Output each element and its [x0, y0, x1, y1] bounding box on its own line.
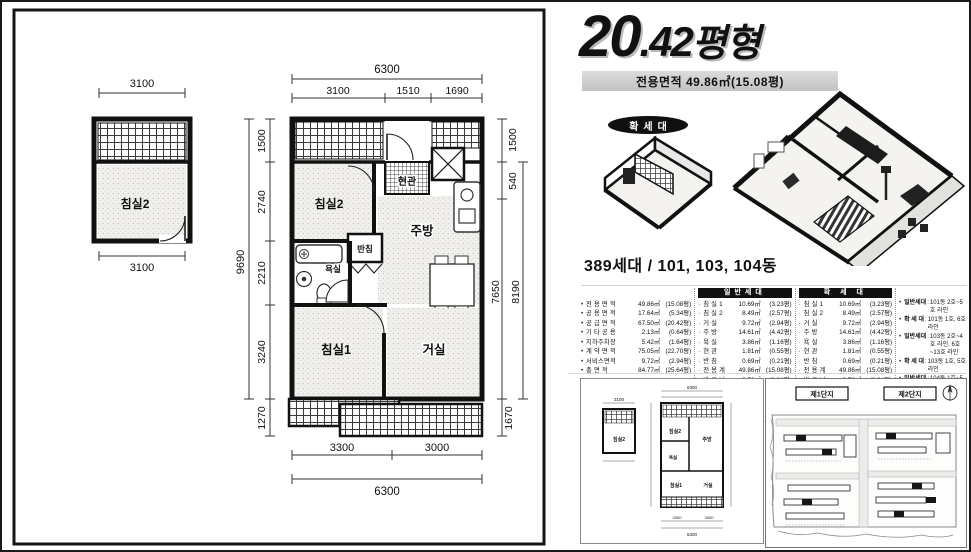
room-label-bath: 욕실	[325, 264, 341, 274]
svg-text:거실: 거실	[703, 482, 713, 489]
table-row: ·전 용 계49.86㎡(15.08평)	[698, 366, 791, 375]
svg-text:6300: 6300	[687, 385, 698, 390]
iso-view-apartment	[718, 84, 968, 266]
mini-floor-plan: 3100 6300 6300 3300 3000 침실2 침실2 주방 욕실 침…	[581, 379, 761, 541]
svg-text:7650: 7650	[490, 280, 502, 304]
bedroom1-area: 침실1	[292, 305, 387, 399]
table-row: ·거 실9.72㎡(2.94평)	[698, 319, 791, 328]
table-row: •지하주차장5.42㎡(1.64평)	[581, 338, 691, 347]
svg-text:주방: 주방	[702, 436, 712, 443]
room-label-bedroom2-small: 침실2	[121, 196, 150, 211]
table-row: ·주 방14.61㎡(4.42평)	[799, 328, 892, 337]
svg-text:욕실: 욕실	[669, 454, 677, 461]
svg-text:540: 540	[507, 172, 519, 190]
table-row: ·반 침0.69㎡(0.21평)	[698, 357, 791, 366]
divider-rule	[568, 373, 967, 374]
dim-label: 3100	[130, 262, 154, 274]
site-label-left: 제1단지	[810, 390, 833, 399]
svg-text:3240: 3240	[256, 340, 268, 364]
room-label-entrance: 현관	[398, 175, 417, 188]
page-title: 20.42평형	[579, 8, 760, 66]
svg-text:8190: 8190	[510, 280, 522, 304]
general-unit-header: 일반세대	[698, 288, 791, 298]
table-row: ·침 실 110.69㎡(3.23평)	[799, 300, 892, 309]
table-row: ·침 실 28.49㎡(2.57평)	[698, 309, 791, 318]
table-row: •전 용 면 적49.86㎡(15.08평)	[581, 300, 691, 309]
svg-text:1500: 1500	[507, 128, 519, 152]
svg-text:침실1: 침실1	[670, 482, 682, 489]
area-summary-rows: •전 용 면 적49.86㎡(15.08평) •공 용 면 적17.64㎡(5.…	[581, 300, 691, 376]
svg-text:침실2: 침실2	[613, 436, 625, 443]
main-plan: 6300 3100 1510 1690 현관	[289, 64, 528, 498]
dim-label: 3100	[130, 78, 154, 90]
table-row: •기 타 공 용2.13㎡(0.64평)	[581, 328, 691, 337]
table-row: ·욕 실3.86㎡(1.16평)	[799, 338, 892, 347]
svg-text:6300: 6300	[374, 64, 400, 76]
room-label-kitchen: 주방	[410, 223, 434, 238]
table-row: ·반 침0.69㎡(0.21평)	[799, 357, 892, 366]
table-row: •서비스면적9.72㎡(2.94평)	[581, 357, 691, 366]
svg-text:1500: 1500	[256, 129, 268, 153]
compass-icon	[943, 384, 957, 401]
table-row: •계 약 면 적75.05㎡(22.70평)	[581, 347, 691, 356]
site-label-right: 제2단지	[898, 390, 921, 399]
svg-text:3000: 3000	[705, 515, 715, 520]
kitchen-area: 주방	[378, 182, 480, 314]
table-row: ·거 실9.72㎡(2.94평)	[799, 319, 892, 328]
title-suffix: 평형	[692, 23, 760, 65]
expanded-unit-header: 확 세 대	[799, 288, 892, 298]
bottom-balcony	[289, 399, 482, 436]
iso-view-expanded-room	[595, 128, 720, 238]
svg-text:1670: 1670	[503, 406, 515, 430]
dim-column-left-labels: 9690 1500 2740 2210 3240 1270	[235, 129, 268, 430]
svg-text:3300: 3300	[330, 442, 354, 454]
title-decimal: .42	[640, 18, 692, 65]
table-row: •공 급 면 적67.50㎡(20.42평)	[581, 319, 691, 328]
svg-text:9690: 9690	[235, 250, 247, 274]
units-heading: 389세대 / 101, 103, 104동	[584, 252, 777, 276]
svg-text:침실2: 침실2	[669, 428, 681, 435]
table-row: ·욕 실3.86㎡(1.16평)	[698, 338, 791, 347]
floor-plan: 3100 침실2 3100 96	[2, 2, 562, 552]
entrance-area: 현관	[385, 121, 429, 194]
table-row: ·주 방14.61㎡(4.42평)	[698, 328, 791, 337]
brochure-page: 3100 침실2 3100 96	[0, 0, 971, 552]
table-row: ·현 관1.81㎡(0.55평)	[698, 347, 791, 356]
svg-text:1510: 1510	[396, 85, 420, 97]
table-row: •공 용 면 적17.64㎡(5.34평)	[581, 309, 691, 318]
elevator-shaft	[432, 148, 464, 180]
site-plan: 제1단지 제2단지	[766, 379, 964, 545]
svg-text:3000: 3000	[425, 442, 449, 454]
svg-text:6300: 6300	[374, 486, 400, 498]
living-area: 거실	[387, 308, 479, 396]
svg-text:3100: 3100	[326, 85, 350, 97]
svg-text:1270: 1270	[256, 406, 268, 430]
legend-row: •확 세 대:101동 1호, 6호 라인	[899, 317, 967, 333]
site-plan-panel: 제1단지 제2단지	[765, 378, 967, 548]
title-number: 20	[579, 4, 640, 69]
room-label-bedroom1: 침실1	[321, 342, 351, 357]
mini-plan-panel: 3100 6300 6300 3300 3000 침실2 침실2 주방 욕실 침…	[580, 378, 764, 544]
legend-row: •일반세대:101동 2호~5호 라인	[899, 300, 967, 316]
svg-text:1690: 1690	[445, 85, 469, 97]
svg-text:2210: 2210	[256, 261, 268, 285]
table-row: ·현 관1.81㎡(0.55평)	[799, 347, 892, 356]
svg-text:3300: 3300	[673, 515, 683, 520]
legend-row: •일반세대:103동 2호~4호 라인, 6호~13호 라인	[899, 334, 967, 357]
table-row: •총 면 적84.77㎡(25.64평)	[581, 366, 691, 375]
table-row: ·침 실 110.69㎡(3.23평)	[698, 300, 791, 309]
table-row: ·전 용 계49.86㎡(15.08평)	[799, 366, 892, 375]
svg-text:3100: 3100	[614, 397, 625, 402]
svg-text:2740: 2740	[256, 190, 268, 214]
room-label-closet: 반침	[357, 244, 373, 254]
svg-text:6300: 6300	[687, 532, 698, 537]
bedroom2-area: 침실2	[292, 162, 374, 241]
room-label-living: 거실	[422, 342, 445, 357]
dim-column-right-labels: 1500 540 7650 8190 1670	[490, 128, 522, 430]
room-label-bedroom2: 침실2	[315, 196, 344, 211]
table-row: ·침 실 28.49㎡(2.57평)	[799, 309, 892, 318]
small-plan: 3100 침실2 3100	[94, 78, 190, 274]
